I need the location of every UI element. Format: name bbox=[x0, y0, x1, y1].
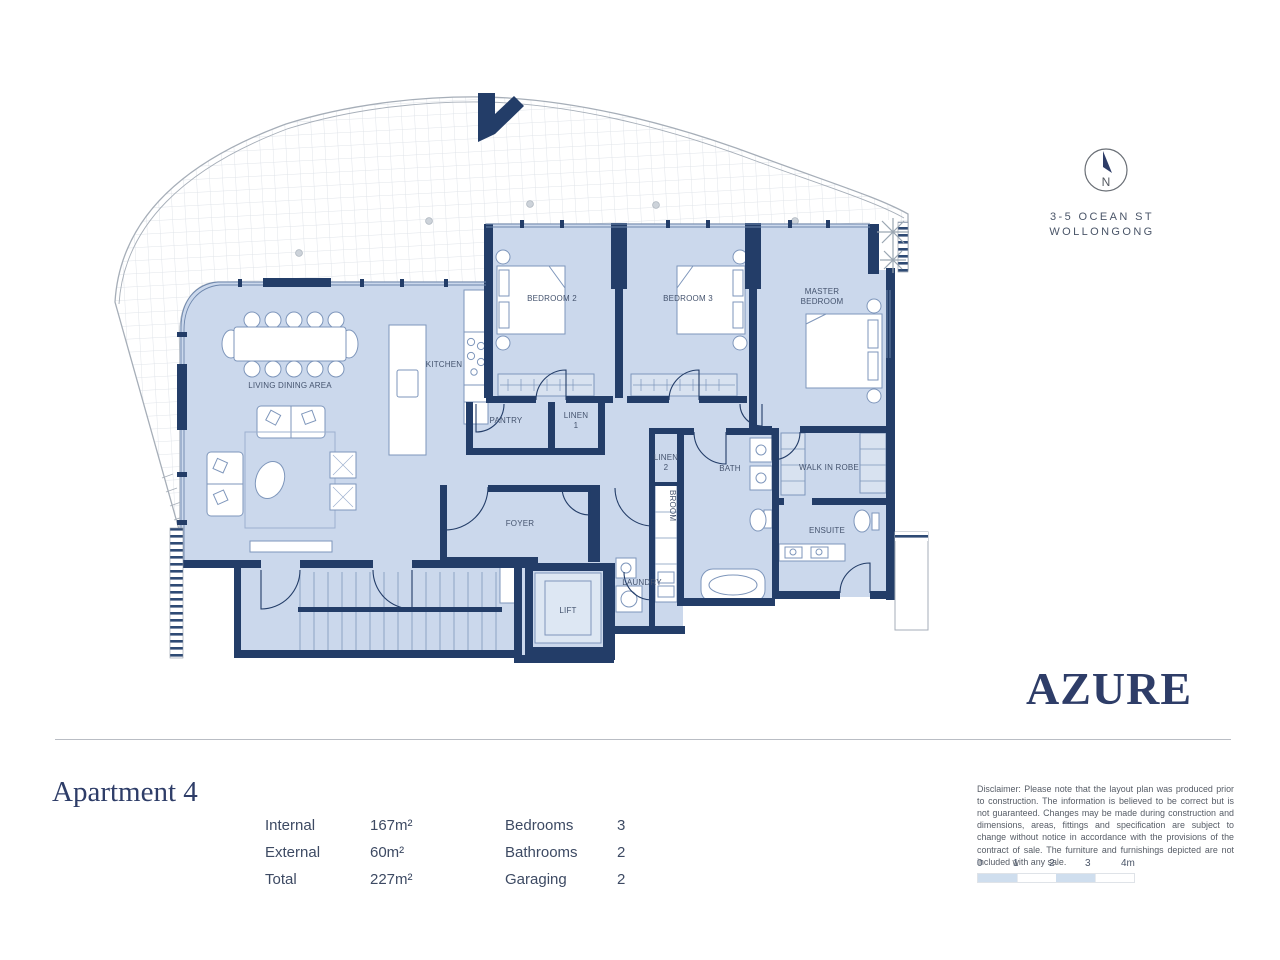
room-label-bath: BATH bbox=[719, 464, 741, 473]
stat-row-total: Total 227m² bbox=[265, 871, 413, 888]
disclaimer-text: Disclaimer: Please note that the layout … bbox=[977, 783, 1234, 868]
stat-label: Bathrooms bbox=[505, 844, 617, 861]
room-label-lift: LIFT bbox=[559, 606, 576, 615]
room-label-kitchen: KITCHEN bbox=[426, 360, 463, 369]
azure-logo: AZURE bbox=[1026, 662, 1192, 715]
side-door-panel bbox=[177, 364, 187, 430]
stat-value: 60m² bbox=[370, 844, 404, 861]
north-needle-icon bbox=[1103, 151, 1112, 173]
scale-tick: 3 bbox=[1085, 858, 1091, 869]
room-label-linen2: LINEN bbox=[654, 453, 679, 462]
sliding-door-panel bbox=[263, 278, 331, 287]
stat-label: Bedrooms bbox=[505, 817, 617, 834]
stat-value: 227m² bbox=[370, 871, 413, 888]
stat-label: Garaging bbox=[505, 871, 617, 888]
svg-text:1: 1 bbox=[574, 421, 579, 430]
stat-label: External bbox=[265, 844, 370, 861]
bedside-table bbox=[496, 250, 510, 264]
apartment-title: Apartment 4 bbox=[52, 776, 198, 809]
stat-label: Internal bbox=[265, 817, 370, 834]
room-label-master: MASTER bbox=[805, 287, 840, 296]
compass: N bbox=[1082, 146, 1130, 198]
divider-line bbox=[55, 739, 1231, 740]
scale-tick: 4m bbox=[1121, 858, 1135, 869]
stat-row-external: External 60m² bbox=[265, 844, 413, 861]
address-line1: 3-5 OCEAN ST bbox=[1022, 210, 1182, 225]
room-label-bedroom3: BEDROOM 3 bbox=[663, 294, 713, 303]
side-balcony bbox=[895, 532, 928, 630]
cooktop-burner bbox=[467, 338, 474, 345]
room-label-bedroom2: BEDROOM 2 bbox=[527, 294, 577, 303]
stat-row-bathrooms: Bathrooms 2 bbox=[505, 844, 625, 861]
scale-tick: 2 bbox=[1049, 858, 1055, 869]
room-label-living: LIVING DINING AREA bbox=[248, 381, 332, 390]
room-label-foyer: FOYER bbox=[506, 519, 535, 528]
laundry-tub bbox=[616, 558, 636, 578]
stat-value: 167m² bbox=[370, 817, 413, 834]
address-line2: WOLLONGONG bbox=[1022, 225, 1182, 240]
room-label-ensuite: ENSUITE bbox=[809, 526, 845, 535]
room-label-pantry: PANTRY bbox=[490, 416, 523, 425]
washer bbox=[616, 586, 642, 612]
room-label-laundry: LAUNDRY bbox=[622, 578, 662, 587]
stat-label: Total bbox=[265, 871, 370, 888]
room-label-broom: BROOM bbox=[668, 490, 677, 521]
count-stats: Bedrooms 3 Bathrooms 2 Garaging 2 bbox=[505, 817, 625, 898]
bathtub bbox=[701, 569, 765, 602]
stat-value: 2 bbox=[617, 871, 625, 888]
stat-value: 2 bbox=[617, 844, 625, 861]
dining-table bbox=[234, 327, 346, 361]
room-label-linen1: LINEN bbox=[564, 411, 589, 420]
stat-row-bedrooms: Bedrooms 3 bbox=[505, 817, 625, 834]
ensuite-toilet bbox=[854, 510, 870, 532]
svg-text:BEDROOM: BEDROOM bbox=[801, 297, 844, 306]
bath-toilet bbox=[750, 509, 766, 531]
compass-n-label: N bbox=[1102, 175, 1111, 189]
kitchen-sink bbox=[397, 370, 418, 397]
floor-plan: LIVING DINING AREA KITCHEN PANTRY LINEN … bbox=[100, 80, 930, 680]
svg-text:2: 2 bbox=[664, 463, 669, 472]
stat-value: 3 bbox=[617, 817, 625, 834]
wir-shelf-right bbox=[860, 433, 886, 493]
stat-row-garaging: Garaging 2 bbox=[505, 871, 625, 888]
area-stats: Internal 167m² External 60m² Total 227m² bbox=[265, 817, 413, 898]
stat-row-internal: Internal 167m² bbox=[265, 817, 413, 834]
scale-tick: 1 bbox=[1013, 858, 1019, 869]
scale-tick: 0 bbox=[977, 858, 983, 869]
scale-bar: 0 1 2 3 4m bbox=[977, 858, 1137, 883]
scale-bar-segments bbox=[977, 873, 1135, 883]
floorplan-page: LIVING DINING AREA KITCHEN PANTRY LINEN … bbox=[0, 0, 1280, 960]
room-label-wir: WALK IN ROBE bbox=[799, 463, 859, 472]
project-address: 3-5 OCEAN ST WOLLONGONG bbox=[1022, 210, 1182, 240]
scale-tick-labels: 0 1 2 3 4m bbox=[977, 858, 1137, 871]
tv-unit bbox=[250, 541, 332, 552]
